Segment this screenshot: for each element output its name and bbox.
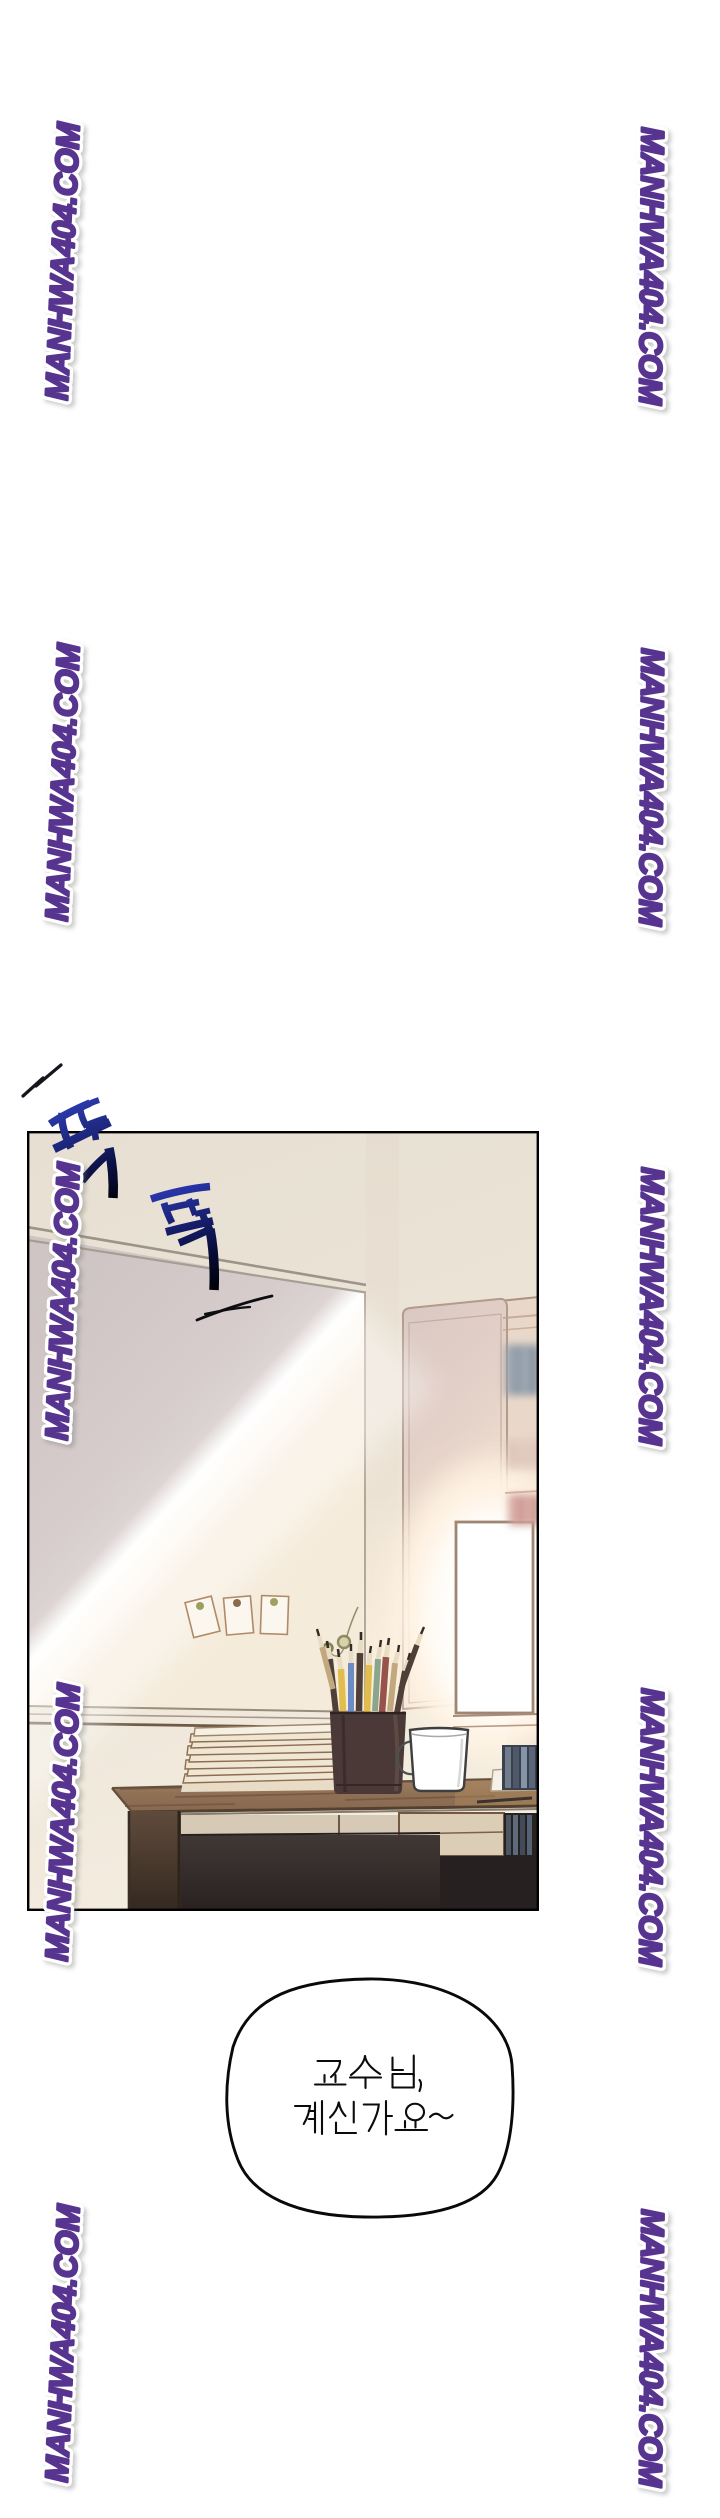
svg-text:MANHWA404.COM: MANHWA404.COM bbox=[38, 1160, 86, 1441]
svg-text:MANHWA404.COM: MANHWA404.COM bbox=[632, 648, 670, 928]
svg-text:MANHWA404.COM: MANHWA404.COM bbox=[632, 1167, 670, 1447]
svg-text:MANHWA404.COM: MANHWA404.COM bbox=[38, 641, 86, 922]
svg-text:MANHWA404.COM: MANHWA404.COM bbox=[632, 127, 670, 407]
svg-text:MANHWA404.COM: MANHWA404.COM bbox=[38, 120, 86, 401]
svg-text:MANHWA404.COM: MANHWA404.COM bbox=[38, 1681, 86, 1962]
svg-text:MANHWA404.COM: MANHWA404.COM bbox=[632, 1688, 670, 1968]
svg-text:MANHWA404.COM: MANHWA404.COM bbox=[632, 2209, 670, 2489]
svg-text:MANHWA404.COM: MANHWA404.COM bbox=[38, 2202, 86, 2483]
